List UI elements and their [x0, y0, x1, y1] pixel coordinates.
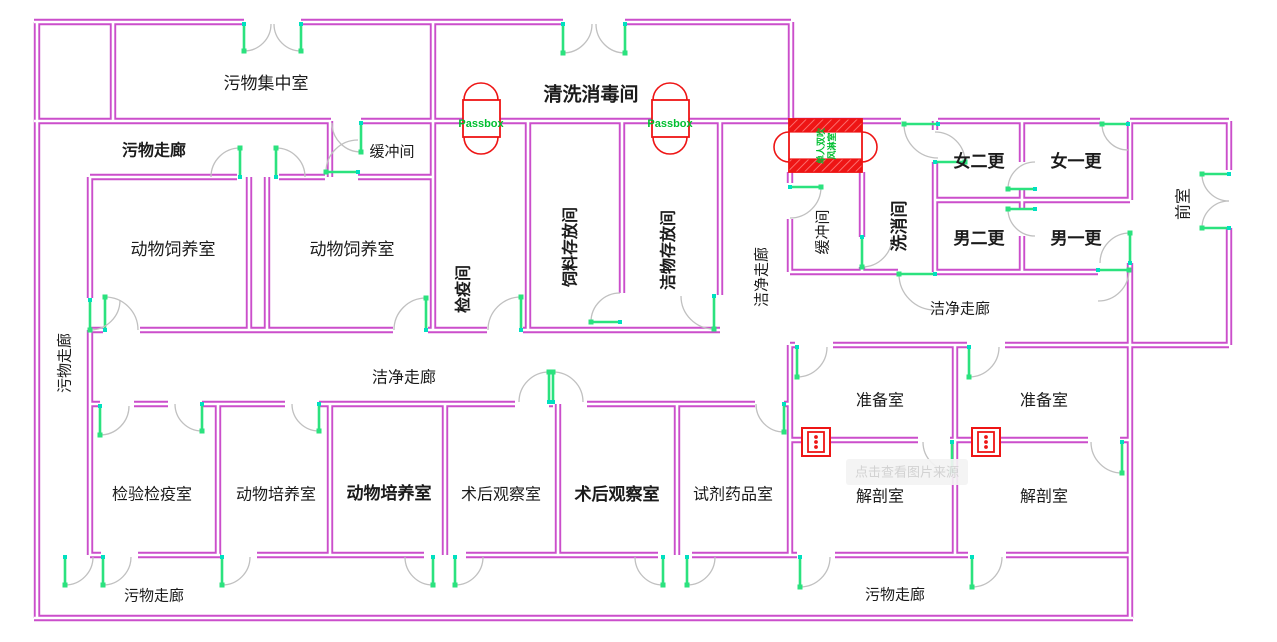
room-label-wash-room: 洗消间 — [889, 201, 909, 252]
door-marker — [405, 555, 436, 588]
door-marker — [551, 370, 584, 405]
door-marker — [970, 555, 1003, 590]
room-label-reagent-drug: 试剂药品室 — [693, 486, 773, 504]
door-marker — [681, 294, 717, 332]
door-marker — [242, 22, 272, 54]
door-marker — [860, 235, 893, 270]
corridor-label-dirty-left: 污物走廊 — [56, 333, 73, 393]
door-marker — [756, 402, 787, 435]
walls — [34, 22, 1229, 618]
door-marker — [561, 22, 593, 56]
corridor-label-dirty-bottom-right: 污物走廊 — [865, 586, 925, 603]
corridor-label-dirty-top: 污物走廊 — [122, 141, 186, 160]
door-marker — [589, 293, 623, 325]
door-marker — [1200, 201, 1232, 231]
door-marker — [967, 345, 1000, 380]
room-label-buffer-right: 缓冲间 — [814, 209, 831, 254]
door-marker — [1006, 162, 1038, 192]
door-marker — [98, 404, 130, 438]
room-label-anteroom: 前室 — [1175, 188, 1193, 220]
door-marker — [175, 402, 205, 434]
door-marker — [274, 22, 304, 54]
room-label-clean-storage: 洁物存放间 — [659, 210, 678, 290]
room-label-dissection-1: 解剖室 — [856, 488, 904, 506]
room-label-inspection-quarantine: 检验检疫室 — [112, 486, 192, 504]
passbox-2-label: Passbox — [647, 118, 693, 130]
air-shower: 单人双吹 风淋室 — [774, 119, 877, 172]
door-marker — [1100, 122, 1131, 151]
door-marker — [332, 121, 364, 155]
door-marker — [519, 370, 552, 405]
transfer-window-1 — [802, 428, 830, 456]
door-marker — [1096, 268, 1132, 302]
room-label-animal-breeding-2: 动物饲养室 — [310, 240, 395, 259]
floor-plan-canvas: Passbox Passbox 单人双吹 风淋室 污物集 — [0, 0, 1277, 642]
door-marker — [453, 555, 484, 588]
air-shower-label-line1: 单人双吹 — [815, 127, 826, 164]
room-label-buffer-top: 缓冲间 — [369, 143, 414, 160]
door-marker — [635, 555, 666, 588]
passbox-1-label: Passbox — [458, 118, 504, 130]
air-shower-right-door-arc-icon — [862, 132, 877, 162]
room-label-animal-breeding-1: 动物饲养室 — [131, 240, 216, 259]
door-marker — [685, 555, 716, 588]
air-shower-left-door-arc-icon — [774, 132, 789, 162]
door-marker — [292, 402, 322, 434]
room-label-washing-disinfection: 清洗消毒间 — [543, 83, 638, 106]
room-label-dissection-2: 解剖室 — [1020, 488, 1068, 506]
room-label-male-second-change: 男二更 — [954, 229, 1006, 248]
corridor-label-dirty-bottom-left: 污物走廊 — [124, 587, 184, 604]
corridor-label-clean-right: 洁净走廊 — [930, 300, 990, 317]
door-marker — [795, 345, 828, 380]
door-marker — [798, 555, 831, 590]
room-label-prep-2: 准备室 — [1020, 392, 1068, 410]
room-label-postop-observation-1: 术后观察室 — [461, 486, 541, 504]
door-marker — [63, 555, 94, 588]
room-label-female-second-change: 女二更 — [954, 151, 1006, 171]
door-marker — [394, 296, 429, 333]
room-label-female-first-change: 女一更 — [1051, 151, 1103, 171]
room-label-quarantine: 检疫间 — [454, 265, 473, 313]
door-marker — [1200, 172, 1232, 202]
transfer-window-2 — [972, 428, 1000, 456]
watermark[interactable]: 点击查看图片来源 — [846, 459, 968, 485]
passbox-2: Passbox — [647, 83, 693, 154]
corridor-label-clean-mid-vertical: 洁净走廊 — [753, 247, 770, 307]
room-label-animal-culture-1: 动物培养室 — [236, 486, 316, 504]
room-label-prep-1: 准备室 — [856, 392, 904, 410]
door-marker — [1100, 231, 1133, 266]
corridor-label-clean-center: 洁净走廊 — [372, 369, 436, 387]
door-marker — [101, 555, 132, 588]
room-label-feed-storage: 饲料存放间 — [561, 207, 580, 288]
watermark-text[interactable]: 点击查看图片来源 — [855, 465, 959, 480]
door-marker — [1006, 207, 1038, 237]
room-label-postop-observation-2: 术后观察室 — [575, 484, 660, 504]
door-marker — [488, 295, 524, 333]
air-shower-label-line2: 风淋室 — [826, 132, 837, 159]
door-marker — [596, 22, 628, 56]
door-marker — [220, 555, 251, 588]
floor-plan: Passbox Passbox 单人双吹 风淋室 污物集 — [0, 0, 1277, 642]
room-label-animal-culture-2: 动物培养室 — [347, 483, 432, 503]
room-label-waste-collection: 污物集中室 — [224, 74, 309, 93]
door-marker — [1091, 440, 1125, 476]
passbox-1: Passbox — [458, 83, 504, 154]
room-label-male-first-change: 男一更 — [1051, 229, 1103, 248]
